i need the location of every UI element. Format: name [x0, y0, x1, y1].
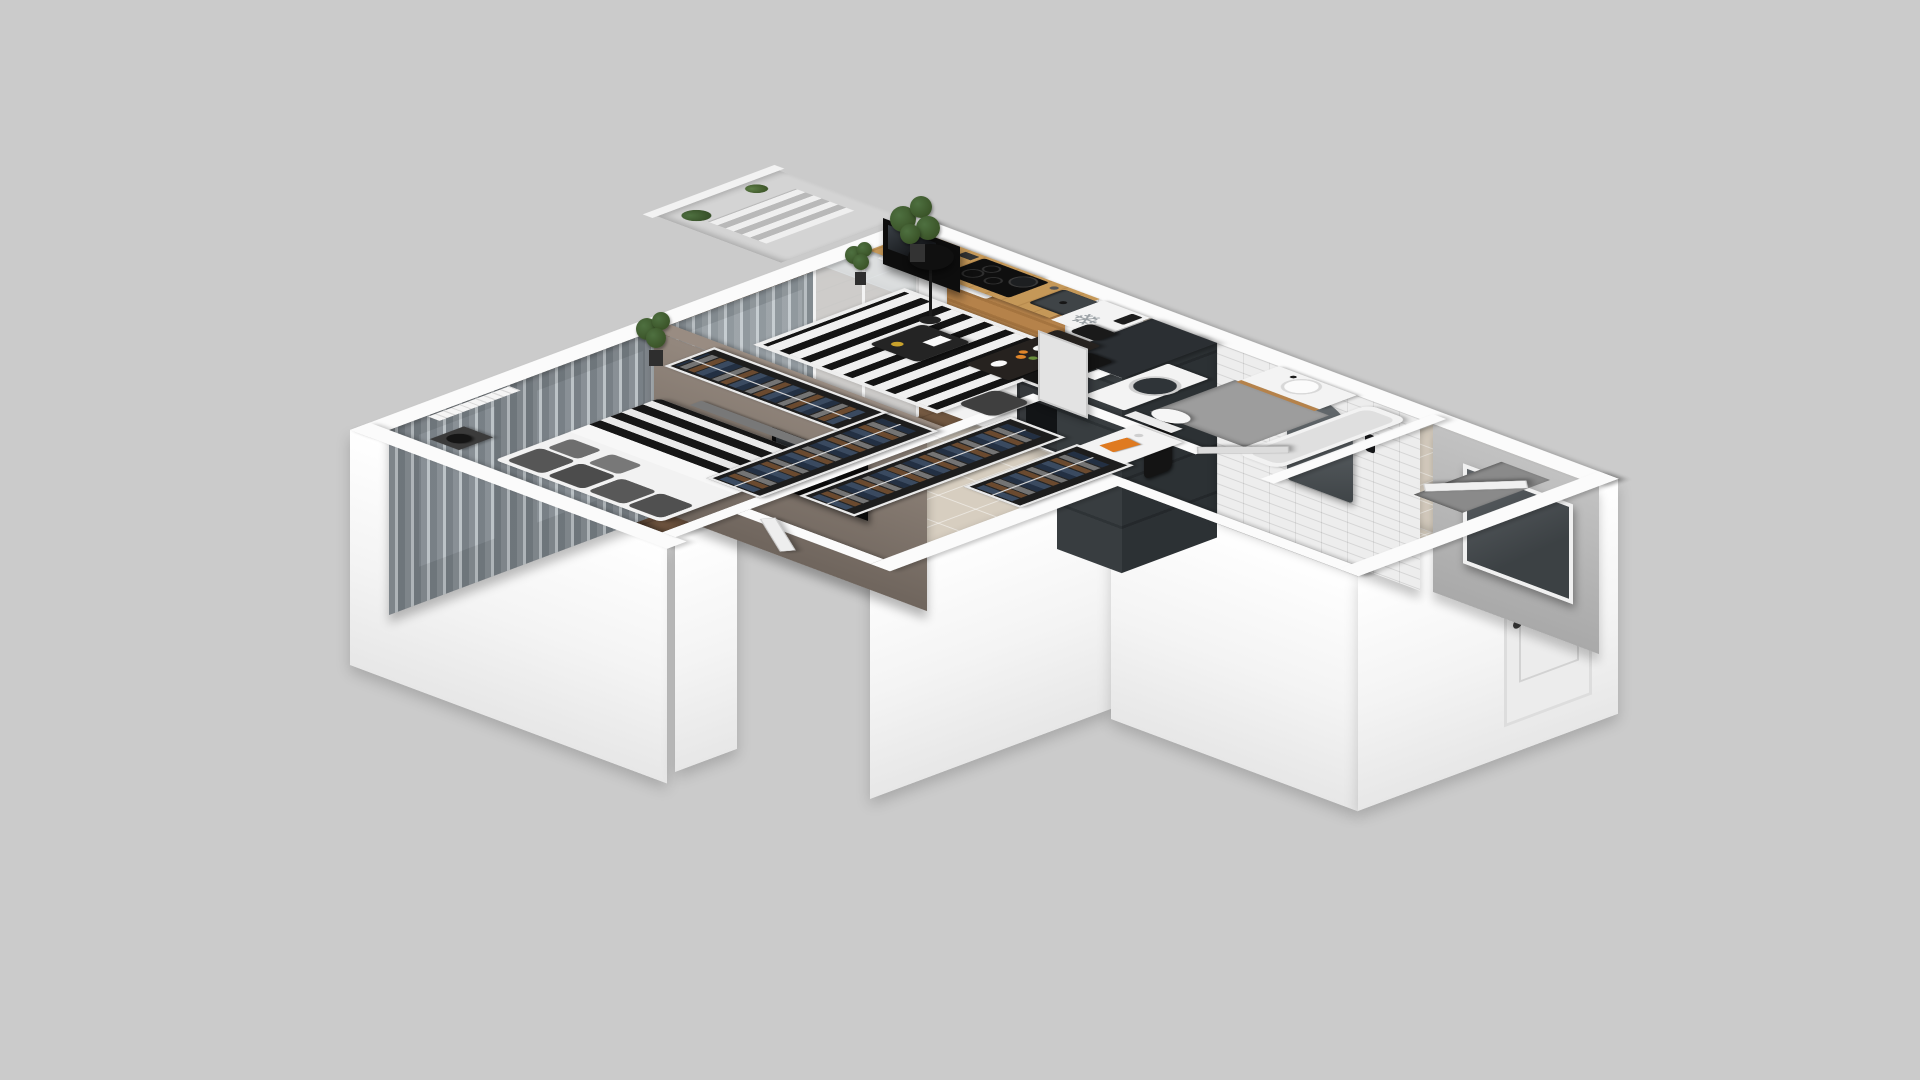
console-seam	[913, 250, 972, 272]
magazine	[922, 336, 951, 347]
arched-mirror	[1287, 387, 1353, 504]
bathroom-tile-wall-face	[1217, 343, 1420, 591]
floor-layer	[0, 0, 1920, 1080]
dining-chair	[1020, 367, 1074, 387]
entry-floor-west	[1124, 448, 1433, 564]
kitchen-counter	[869, 231, 1100, 318]
light-armchair	[774, 334, 849, 362]
nightstand	[430, 426, 493, 450]
wall-hall-south	[870, 474, 1130, 571]
pillow-2	[547, 463, 617, 489]
interior-face-layer	[0, 0, 1920, 1080]
shaft-south-face	[1122, 342, 1217, 573]
bedroom-tv	[772, 427, 868, 521]
entry-sideboard	[1077, 425, 1183, 465]
coffee-table	[869, 324, 971, 362]
pillow-5	[547, 439, 602, 460]
kitchen-upper-cabinets	[919, 231, 1143, 407]
toilet-tank	[1124, 411, 1183, 433]
outer-wall-bedroom-south-face	[675, 514, 737, 772]
black-towel	[1144, 417, 1172, 479]
furniture-layer: ❄	[0, 0, 1920, 1080]
oven	[1017, 380, 1079, 461]
striped-rug	[753, 288, 1088, 414]
kettle	[908, 244, 939, 256]
entry-doormat	[1414, 462, 1551, 513]
bathroom-door-leaf	[1197, 446, 1289, 453]
dining-chair	[1069, 323, 1118, 341]
cooktop	[944, 258, 1050, 298]
bed	[495, 398, 825, 522]
bathroom-floor	[1070, 343, 1420, 474]
front-door-leaf	[1423, 480, 1528, 491]
tv-console	[877, 237, 1043, 299]
knife-block	[957, 252, 980, 261]
living-curtain-wall-face	[670, 272, 813, 510]
living-corner-plant	[888, 196, 946, 266]
table-lamp	[441, 432, 477, 445]
plant-pot	[910, 244, 925, 262]
small-black-appliance	[1113, 314, 1143, 325]
shaft-west-face	[1057, 354, 1122, 573]
bedroom-floor	[389, 331, 927, 533]
bottle	[1043, 337, 1062, 344]
sconce-left	[1265, 395, 1275, 417]
entry-mirror-panel	[1463, 463, 1573, 604]
orange-fruit	[1017, 350, 1030, 355]
clothes-rod	[827, 429, 1027, 504]
pillow-3	[587, 478, 657, 504]
basin-faucet	[1288, 375, 1298, 379]
hall-wardrobe-1	[799, 417, 1066, 517]
taupe-partition-face	[654, 331, 927, 611]
entry-floor-south	[1287, 424, 1580, 534]
wall-entry-west	[1111, 479, 1371, 576]
hallway-floor	[750, 398, 1179, 559]
clothes-rod	[992, 457, 1094, 495]
burner	[979, 276, 1007, 286]
pan	[1002, 274, 1044, 290]
balcony-striped-mat	[708, 189, 854, 244]
snowflake-icon: ❄	[1059, 309, 1115, 330]
hanging-clothes	[976, 451, 1109, 501]
plate	[988, 359, 1011, 368]
wall-entry-south	[1339, 471, 1619, 576]
dining-chair	[1061, 352, 1115, 372]
washing-machine-drum	[1118, 372, 1193, 400]
wall-northeast	[900, 217, 1619, 486]
living-room-floor	[670, 267, 1098, 427]
wall-living-south-1	[927, 393, 1046, 437]
balcony-floor	[657, 170, 903, 262]
plate	[1030, 343, 1053, 352]
balcony-plant-1	[675, 208, 717, 224]
wall-partition-top	[654, 325, 943, 433]
bed-bench	[690, 401, 815, 448]
console-seam	[950, 264, 1009, 286]
living-tv	[883, 218, 960, 293]
hall-wardrobe-2	[963, 444, 1134, 508]
faucet	[1057, 301, 1068, 305]
kitchen-sink	[1028, 289, 1101, 316]
dark-armchair	[957, 389, 1032, 417]
plant-pot	[855, 272, 866, 285]
bathtub-inner	[1248, 409, 1398, 465]
sprite-layer	[0, 0, 1920, 1080]
kitchen-backsplash	[919, 323, 1143, 441]
hanging-clothes	[812, 424, 1041, 510]
vanity-wood-edge	[1236, 380, 1319, 411]
clothes-rod	[689, 358, 852, 419]
outer-wall-hall-south-face	[870, 474, 1111, 799]
striped-blanket	[589, 398, 825, 486]
bath-wet-mat	[1150, 380, 1329, 447]
front-door-panel	[1504, 519, 1592, 728]
wall-west	[350, 423, 687, 549]
vessel-basin	[1272, 376, 1331, 398]
clothes-rod	[734, 424, 902, 487]
front-door-handle	[1513, 618, 1522, 630]
entry-accent-wall-face	[1433, 424, 1599, 654]
orange-fruit	[1014, 354, 1029, 359]
living-door-leaf	[1038, 330, 1088, 419]
oak-accent-cabinet	[947, 271, 1065, 367]
decor-vase	[1132, 433, 1145, 438]
radiator	[428, 386, 521, 421]
kitchen-wall-face	[919, 231, 1143, 487]
wall-north	[350, 217, 939, 438]
washer-counter	[1083, 364, 1208, 411]
sconce-right	[1365, 432, 1375, 454]
wall-bath-west	[1057, 398, 1208, 455]
bedroom-curtain-wall-face	[389, 331, 654, 615]
gold-vase	[888, 341, 906, 348]
front-door-inset	[1519, 546, 1579, 682]
bath-vanity	[1241, 366, 1356, 409]
floor-lamp-base	[919, 316, 941, 324]
balcony-railing	[643, 165, 784, 218]
hanging-clothes	[675, 353, 865, 424]
bedroom-door-leaf	[760, 518, 796, 552]
bed-sheet-fold	[570, 425, 755, 494]
bedroom-plant	[632, 312, 682, 368]
orange-book	[1099, 438, 1140, 453]
hanging-clothes	[719, 418, 916, 492]
burner	[978, 264, 1006, 274]
wall-bath-south	[1261, 414, 1446, 483]
oven-window	[1026, 398, 1064, 436]
pillow-1	[506, 448, 576, 474]
outer-wall-entry-west-face	[1111, 484, 1358, 811]
bedroom-wardrobe-south	[706, 411, 939, 498]
bottle	[1048, 286, 1061, 291]
pillow-4	[626, 493, 694, 519]
plant-pot	[649, 350, 663, 366]
balcony-door-face	[813, 231, 919, 456]
shaft-top	[1057, 319, 1216, 379]
apartment-render-stage: ❄	[0, 0, 1920, 1080]
living-tv-glare	[888, 225, 936, 267]
balcony-door-mullion	[862, 252, 865, 438]
outer-wall-entry-south-face	[1358, 479, 1618, 811]
fridge: ❄	[1051, 300, 1150, 337]
console-side-plant	[843, 242, 883, 290]
floor-lamp-shade	[908, 244, 954, 270]
floor-lamp-pole	[929, 262, 932, 320]
toilet-bowl	[1144, 406, 1198, 426]
dining-table	[965, 329, 1102, 380]
balcony-plant-2	[740, 183, 773, 195]
bedroom-wardrobe-east	[664, 347, 888, 431]
kitchen-floor	[825, 231, 1152, 353]
outer-wall-west-face	[350, 430, 667, 784]
outer-wall-layer	[0, 0, 1920, 1080]
pillow-6	[587, 454, 642, 475]
wall-hall-west	[737, 509, 883, 564]
bathtub	[1236, 404, 1408, 469]
wall-bedroom-south	[662, 433, 940, 537]
burner	[957, 267, 990, 279]
wall-living-south-2	[1082, 334, 1206, 380]
bedroom-tv-glare	[776, 433, 836, 485]
green-fruit	[1027, 356, 1040, 361]
